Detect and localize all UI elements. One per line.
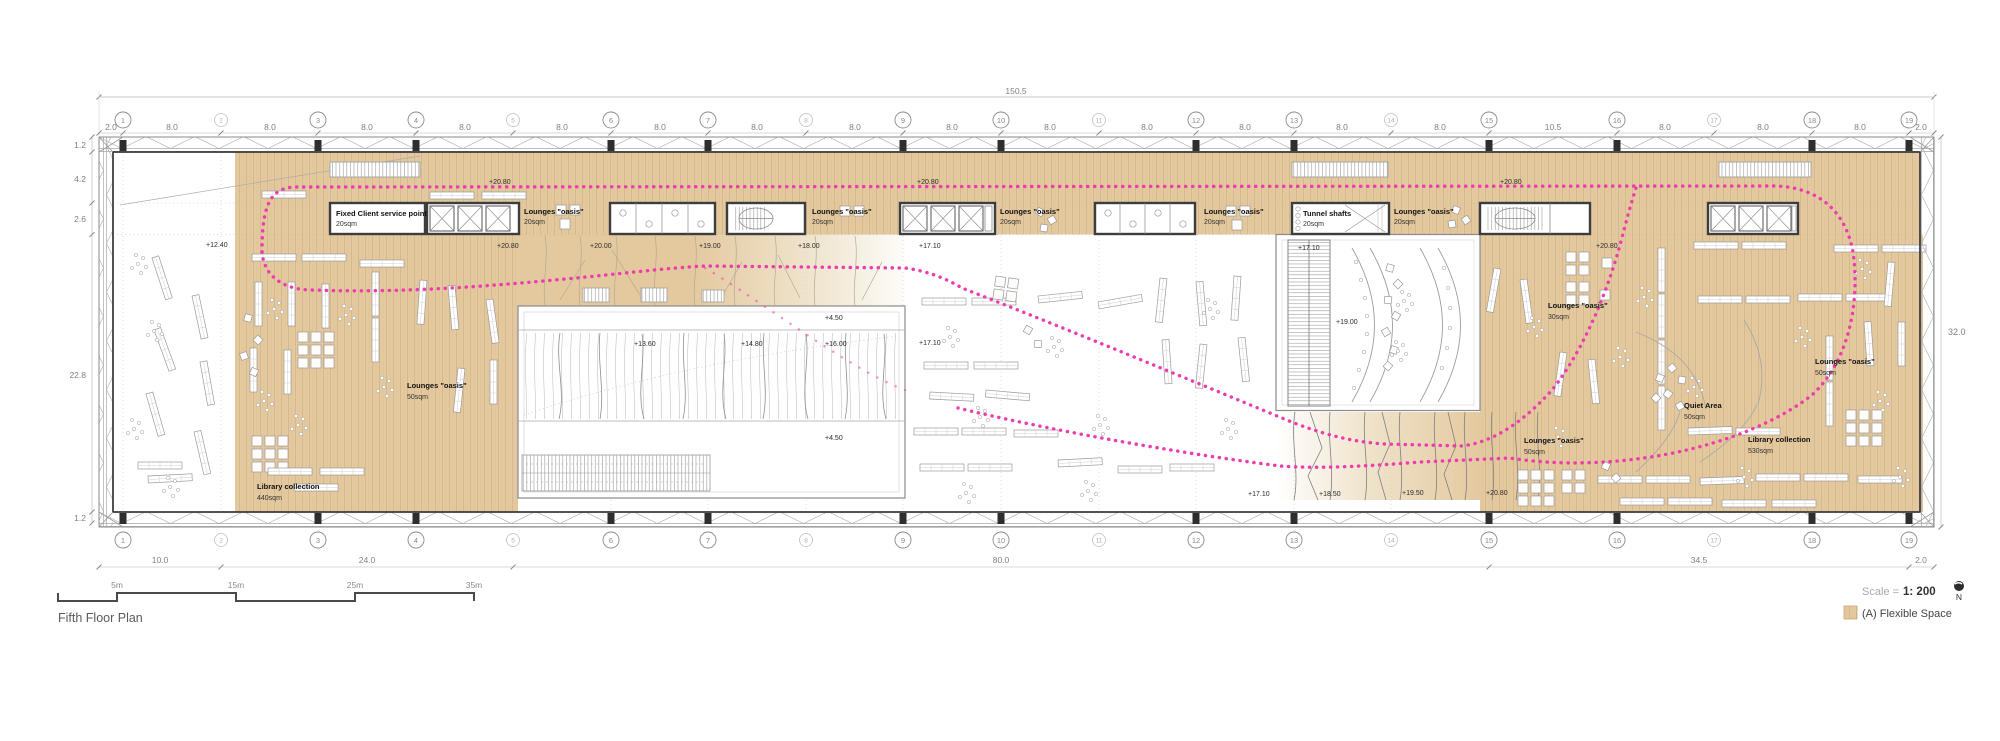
floor-plan-canvas: +12.40 +20.80 +20.80 +20.80 +20.80 +20.0… (0, 0, 2000, 741)
grid-bubble: 12 (1188, 112, 1204, 128)
level-label: +20.80 (917, 179, 939, 186)
grid-bubble: 4 (408, 112, 424, 128)
grid-bubble: 17 (1708, 534, 1721, 547)
grid-bubble: 8 (800, 534, 813, 547)
grid-bubble: 11 (1093, 534, 1106, 547)
grid-bubble: 3 (310, 112, 326, 128)
grid-bubble: 5 (507, 534, 520, 547)
grid-bubble: 4 (408, 532, 424, 548)
scale-label: Scale = (1862, 586, 1899, 598)
grid-bubble: 7 (700, 532, 716, 548)
svg-text:11: 11 (1096, 118, 1103, 125)
room-name: Fixed Client service point (336, 209, 427, 218)
dim-segment: 8.0 (1434, 122, 1446, 132)
dim-segment: 10.0 (152, 555, 169, 565)
grid-bubble: 13 (1286, 112, 1302, 128)
svg-text:17: 17 (1710, 538, 1718, 545)
grid-bubble: 1 (115, 112, 131, 128)
central-void-ramps (518, 306, 905, 498)
scale-value: 1: 200 (1903, 586, 1936, 598)
svg-text:2: 2 (219, 538, 223, 545)
room-name: Lounges "oasis" (524, 207, 584, 216)
legend-flexible-space: (A) Flexible Space (1844, 606, 1952, 620)
dim-segment: 10.5 (1545, 122, 1562, 132)
room-name: Lounges "oasis" (407, 381, 467, 390)
level-label: +17.10 (1298, 245, 1320, 252)
dim-building-height: 32.0 (1948, 327, 1966, 337)
stair-top-edge-2 (1292, 162, 1388, 177)
svg-text:14: 14 (1387, 118, 1395, 125)
svg-text:1: 1 (121, 536, 125, 545)
room-name: Lounges "oasis" (812, 207, 872, 216)
room-area: 20sqm (1000, 219, 1021, 226)
svg-text:10: 10 (997, 536, 1005, 545)
room-name: Quiet Area (1684, 401, 1722, 410)
toilet-core-2 (1095, 203, 1195, 234)
dim-segment: 2.6 (74, 214, 86, 224)
legend-swatch-flexible (1844, 606, 1857, 619)
level-label: +12.40 (206, 242, 228, 249)
level-label: +20.80 (489, 179, 511, 186)
dimensions-right: 32.0 (1939, 135, 1966, 530)
room-area: 20sqm (336, 221, 357, 228)
svg-text:5: 5 (511, 118, 515, 125)
svg-text:1: 1 (121, 116, 125, 125)
dim-segment: 1.2 (74, 140, 86, 150)
svg-text:6: 6 (609, 536, 613, 545)
level-label: +4.50 (825, 435, 843, 442)
level-label: +19.00 (699, 243, 721, 250)
dim-segment: 8.0 (1854, 122, 1866, 132)
grid-bubble: 9 (895, 532, 911, 548)
level-label: +19.00 (1336, 319, 1358, 326)
elevator-bank-2 (900, 203, 995, 234)
svg-text:13: 13 (1290, 116, 1298, 125)
dim-segment: 8.0 (361, 122, 373, 132)
room-name: Lounges "oasis" (1204, 207, 1264, 216)
level-label: +4.50 (825, 315, 843, 322)
level-label: +13.60 (634, 341, 656, 348)
svg-text:12: 12 (1192, 536, 1200, 545)
grid-bubble: 19 (1901, 112, 1917, 128)
level-label: +20.80 (1500, 179, 1522, 186)
dim-segment: 8.0 (556, 122, 568, 132)
grid-bubble: 15 (1481, 112, 1497, 128)
svg-text:15: 15 (1485, 536, 1493, 545)
room-area: 440sqm (257, 495, 282, 502)
svg-text:16: 16 (1613, 536, 1621, 545)
scale-bar-mark: 25m (347, 580, 364, 590)
grid-bubble: 13 (1286, 532, 1302, 548)
svg-text:17: 17 (1710, 118, 1718, 125)
grid-bubble: 5 (507, 114, 520, 127)
dimensions-left: 1.2 4.2 2.6 22.8 1.2 (69, 135, 94, 526)
dim-segment: 4.2 (74, 174, 86, 184)
svg-text:3: 3 (316, 536, 320, 545)
grid-bubble: 9 (895, 112, 911, 128)
tunnel-shafts-core (1292, 203, 1389, 234)
dim-segment: 8.0 (751, 122, 763, 132)
grand-stair-zone (1276, 235, 1480, 411)
grid-bubble: 16 (1609, 532, 1625, 548)
dim-segment: 8.0 (1044, 122, 1056, 132)
level-label: +18.50 (1319, 491, 1341, 498)
dimensions-bottom: 10.0 24.0 80.0 34.5 2.0 (97, 555, 1937, 570)
stair-top-edge-3 (1719, 162, 1811, 177)
svg-text:2: 2 (219, 118, 223, 125)
grid-bubble: 6 (603, 532, 619, 548)
grid-bubble: 16 (1609, 112, 1625, 128)
svg-text:3: 3 (316, 116, 320, 125)
svg-text:18: 18 (1808, 536, 1816, 545)
svg-text:4: 4 (414, 116, 418, 125)
room-name: Lounges "oasis" (1000, 207, 1060, 216)
dim-total-width: 150.5 (1005, 86, 1027, 96)
scale-bar: 5m 15m 25m 35m (58, 580, 482, 601)
level-label: +20.80 (1486, 490, 1508, 497)
level-label: +18.00 (798, 243, 820, 250)
dim-segment: 8.0 (946, 122, 958, 132)
level-label: +17.10 (919, 243, 941, 250)
room-area: 50sqm (1815, 370, 1836, 377)
grid-bubble: 3 (310, 532, 326, 548)
ramp-transition-right (1276, 412, 1480, 500)
room-name: Lounges "oasis" (1548, 301, 1608, 310)
room-name: Library collection (257, 482, 320, 491)
room-name: Library collection (1748, 435, 1811, 444)
room-area: 50sqm (407, 394, 428, 401)
room-name: Tunnel shafts (1303, 209, 1351, 218)
svg-text:5: 5 (511, 538, 515, 545)
svg-text:19: 19 (1905, 116, 1913, 125)
stair-core-2 (1480, 203, 1590, 234)
stair-core-1 (727, 203, 805, 234)
svg-text:9: 9 (901, 116, 905, 125)
room-name: Lounges "oasis" (1394, 207, 1454, 216)
toilet-core-1 (610, 203, 715, 234)
grid-bubble: 7 (700, 112, 716, 128)
dim-segment: 8.0 (166, 122, 178, 132)
svg-text:18: 18 (1808, 116, 1816, 125)
room-area: 20sqm (1303, 221, 1324, 228)
furniture-reading-zone (914, 276, 1250, 504)
svg-text:15: 15 (1485, 116, 1493, 125)
dim-segment: 1.2 (74, 513, 86, 523)
dim-segment: 8.0 (1757, 122, 1769, 132)
plan-title: Fifth Floor Plan (58, 611, 143, 625)
room-area: 20sqm (1204, 219, 1225, 226)
level-label: +16.00 (825, 341, 847, 348)
svg-text:11: 11 (1096, 538, 1103, 545)
dim-segment: 24.0 (359, 555, 376, 565)
dim-segment: 8.0 (1141, 122, 1153, 132)
grid-bubble: 6 (603, 112, 619, 128)
mini-stairs-ramp (583, 288, 724, 302)
dim-segment: 8.0 (1659, 122, 1671, 132)
stair-top-edge-1 (330, 162, 420, 177)
dim-segment: 8.0 (1239, 122, 1251, 132)
dim-segment: 8.0 (1336, 122, 1348, 132)
room-area: 50sqm (1524, 449, 1545, 456)
legend-label: (A) Flexible Space (1862, 608, 1952, 620)
grid-bubbles-top: 1 2 3 4 5 6 7 8 9 10 11 12 13 14 15 16 1… (115, 112, 1917, 128)
north-label: N (1956, 592, 1962, 602)
svg-text:12: 12 (1192, 116, 1200, 125)
grid-bubble: 19 (1901, 532, 1917, 548)
dim-segment: 8.0 (264, 122, 276, 132)
grid-bubble: 15 (1481, 532, 1497, 548)
scale-bar-mark: 15m (228, 580, 245, 590)
dim-segment: 2.0 (1915, 555, 1927, 565)
dim-segment: 8.0 (654, 122, 666, 132)
svg-text:9: 9 (901, 536, 905, 545)
level-label: +17.10 (919, 340, 941, 347)
grid-bubble: 11 (1093, 114, 1106, 127)
svg-text:6: 6 (609, 116, 613, 125)
dim-segment: 22.8 (69, 370, 86, 380)
dimensions-top: 150.5 2.0 8.0 8.0 8.0 8.0 8.0 8.0 8.0 8.… (97, 86, 1937, 137)
grid-bubble: 17 (1708, 114, 1721, 127)
grid-bubble: 10 (993, 112, 1009, 128)
scale-note: Scale = 1: 200 (1862, 586, 1936, 598)
grid-bubble: 18 (1804, 112, 1820, 128)
svg-text:13: 13 (1290, 536, 1298, 545)
room-area: 30sqm (1548, 314, 1569, 321)
room-area: 20sqm (1394, 219, 1415, 226)
scale-bar-mark: 35m (466, 580, 483, 590)
room-area: 50sqm (1684, 414, 1705, 421)
svg-text:10: 10 (997, 116, 1005, 125)
north-indicator: N (1954, 581, 1964, 602)
room-area: 530sqm (1748, 448, 1773, 455)
svg-text:14: 14 (1387, 538, 1395, 545)
svg-text:8: 8 (804, 538, 808, 545)
dim-segment: 80.0 (993, 555, 1010, 565)
dim-segment: 2.0 (1915, 122, 1927, 132)
grid-bubble: 18 (1804, 532, 1820, 548)
room-area: 20sqm (812, 219, 833, 226)
level-label: +17.10 (1248, 491, 1270, 498)
level-label: +20.80 (1596, 243, 1618, 250)
svg-text:8: 8 (804, 118, 808, 125)
dim-segment: 8.0 (459, 122, 471, 132)
room-name: Lounges "oasis" (1815, 357, 1875, 366)
dim-segment: 34.5 (1691, 555, 1708, 565)
grid-bubble: 14 (1385, 534, 1398, 547)
svg-text:19: 19 (1905, 536, 1913, 545)
svg-text:7: 7 (706, 116, 710, 125)
svg-text:7: 7 (706, 536, 710, 545)
dim-segment: 8.0 (849, 122, 861, 132)
svg-text:4: 4 (414, 536, 418, 545)
level-label: +19.50 (1402, 490, 1424, 497)
furniture-left-white-zone (126, 253, 214, 497)
grid-bubble: 1 (115, 532, 131, 548)
level-label: +20.00 (590, 243, 612, 250)
grid-bubble: 10 (993, 532, 1009, 548)
svg-text:16: 16 (1613, 116, 1621, 125)
level-label: +20.80 (497, 243, 519, 250)
scale-bar-mark: 5m (111, 580, 123, 590)
grid-bubble: 2 (215, 534, 228, 547)
room-name: Lounges "oasis" (1524, 436, 1584, 445)
grid-bubbles-bottom: 1 2 3 4 5 6 7 8 9 10 11 12 13 14 15 16 1… (115, 532, 1917, 548)
fixed-client-service-point (330, 203, 425, 234)
grid-bubble: 12 (1188, 532, 1204, 548)
level-label: +14.80 (741, 341, 763, 348)
grid-bubble: 14 (1385, 114, 1398, 127)
grid-bubble: 2 (215, 114, 228, 127)
elevator-bank-1 (427, 203, 519, 234)
elevator-bank-3 (1708, 203, 1798, 234)
room-area: 20sqm (524, 219, 545, 226)
grid-bubble: 8 (800, 114, 813, 127)
